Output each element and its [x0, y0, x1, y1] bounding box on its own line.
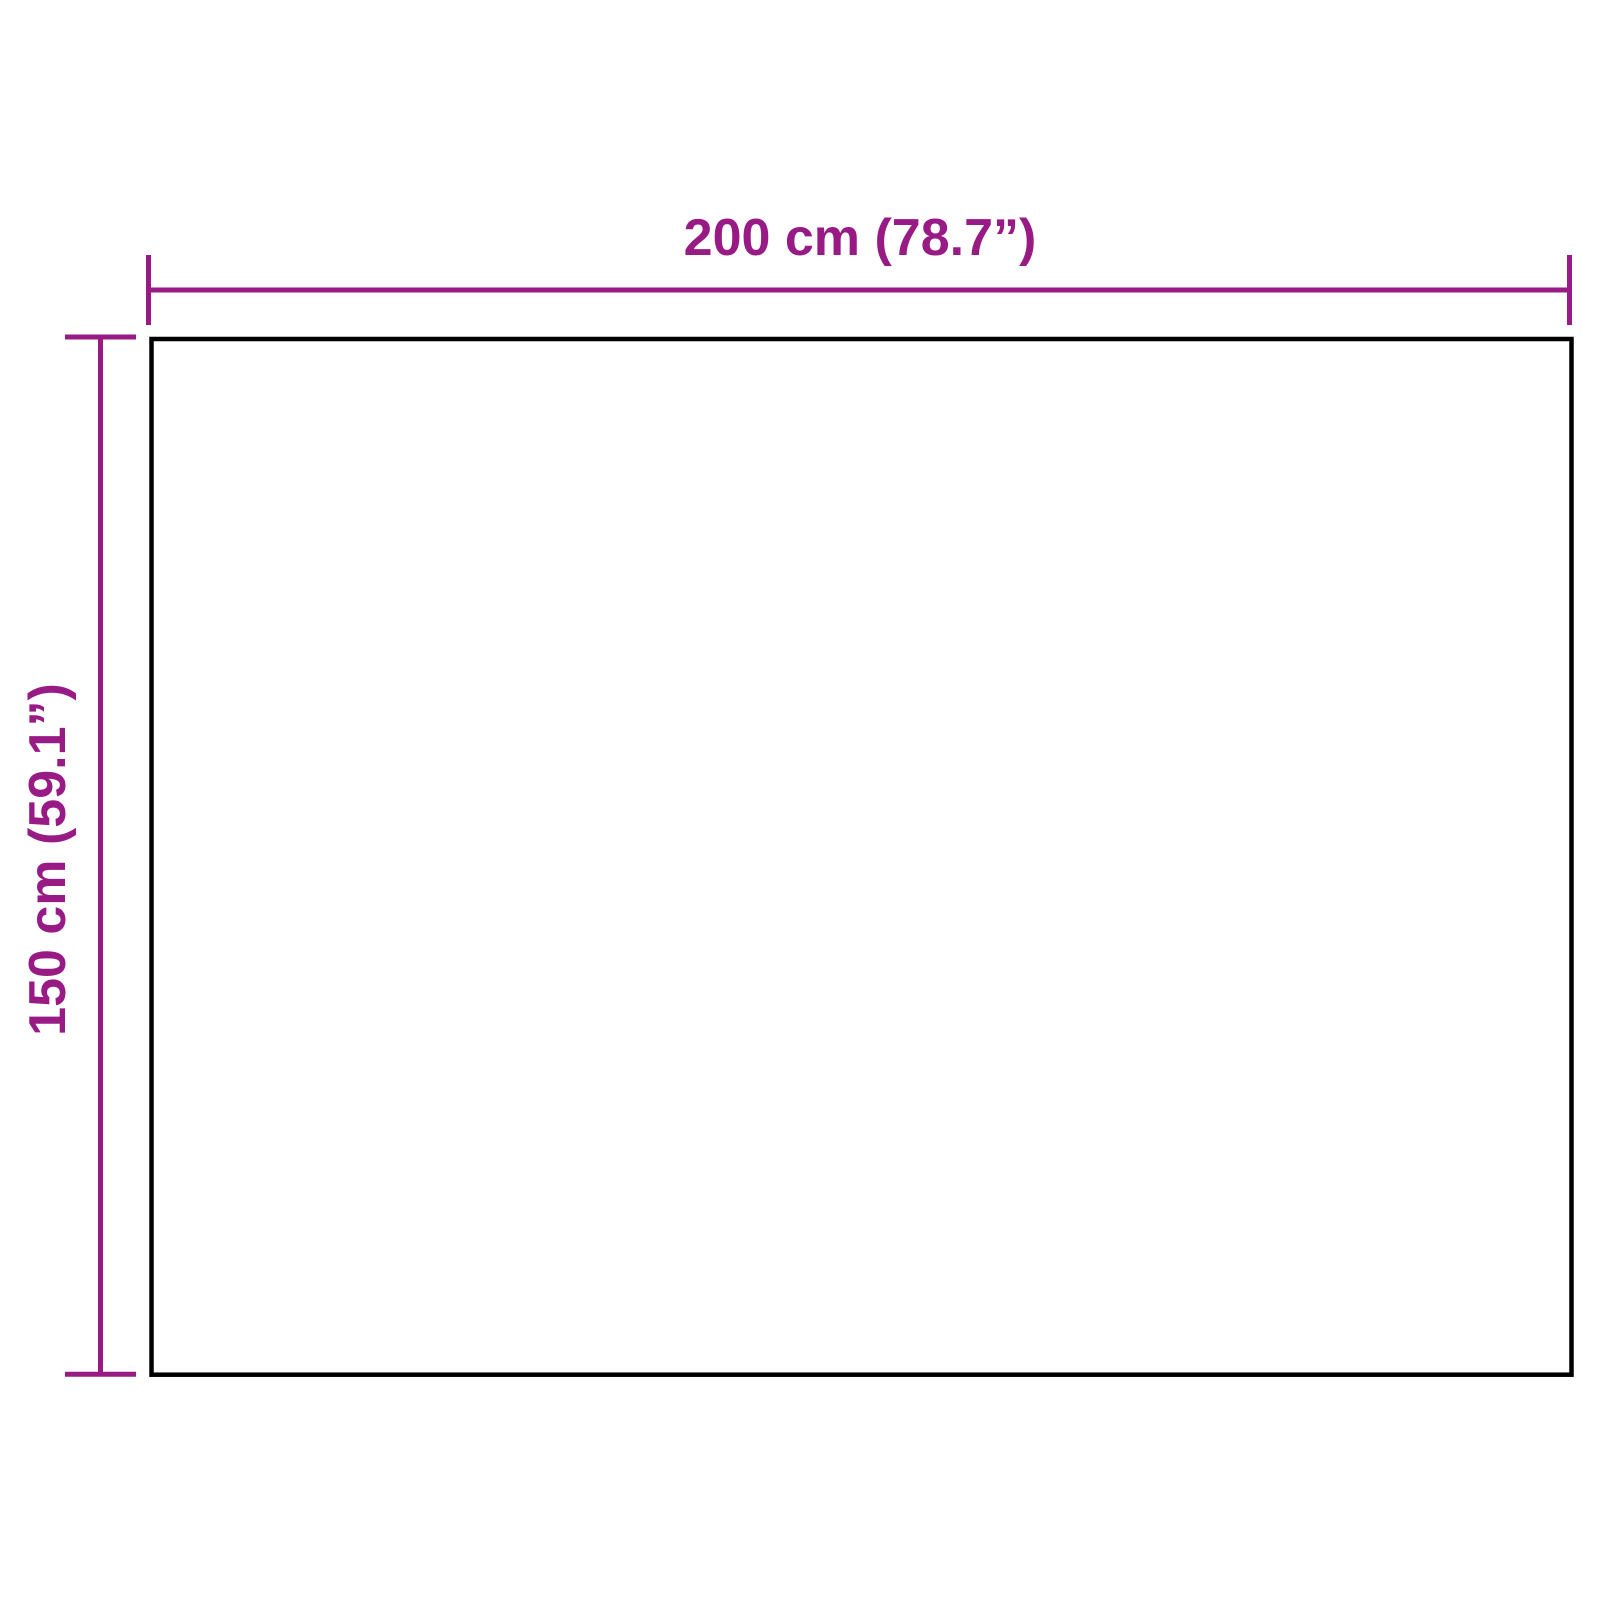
svg-text:200 cm (78.7”): 200 cm (78.7”): [684, 209, 1037, 267]
svg-text:150 cm (59.1”): 150 cm (59.1”): [19, 683, 77, 1036]
